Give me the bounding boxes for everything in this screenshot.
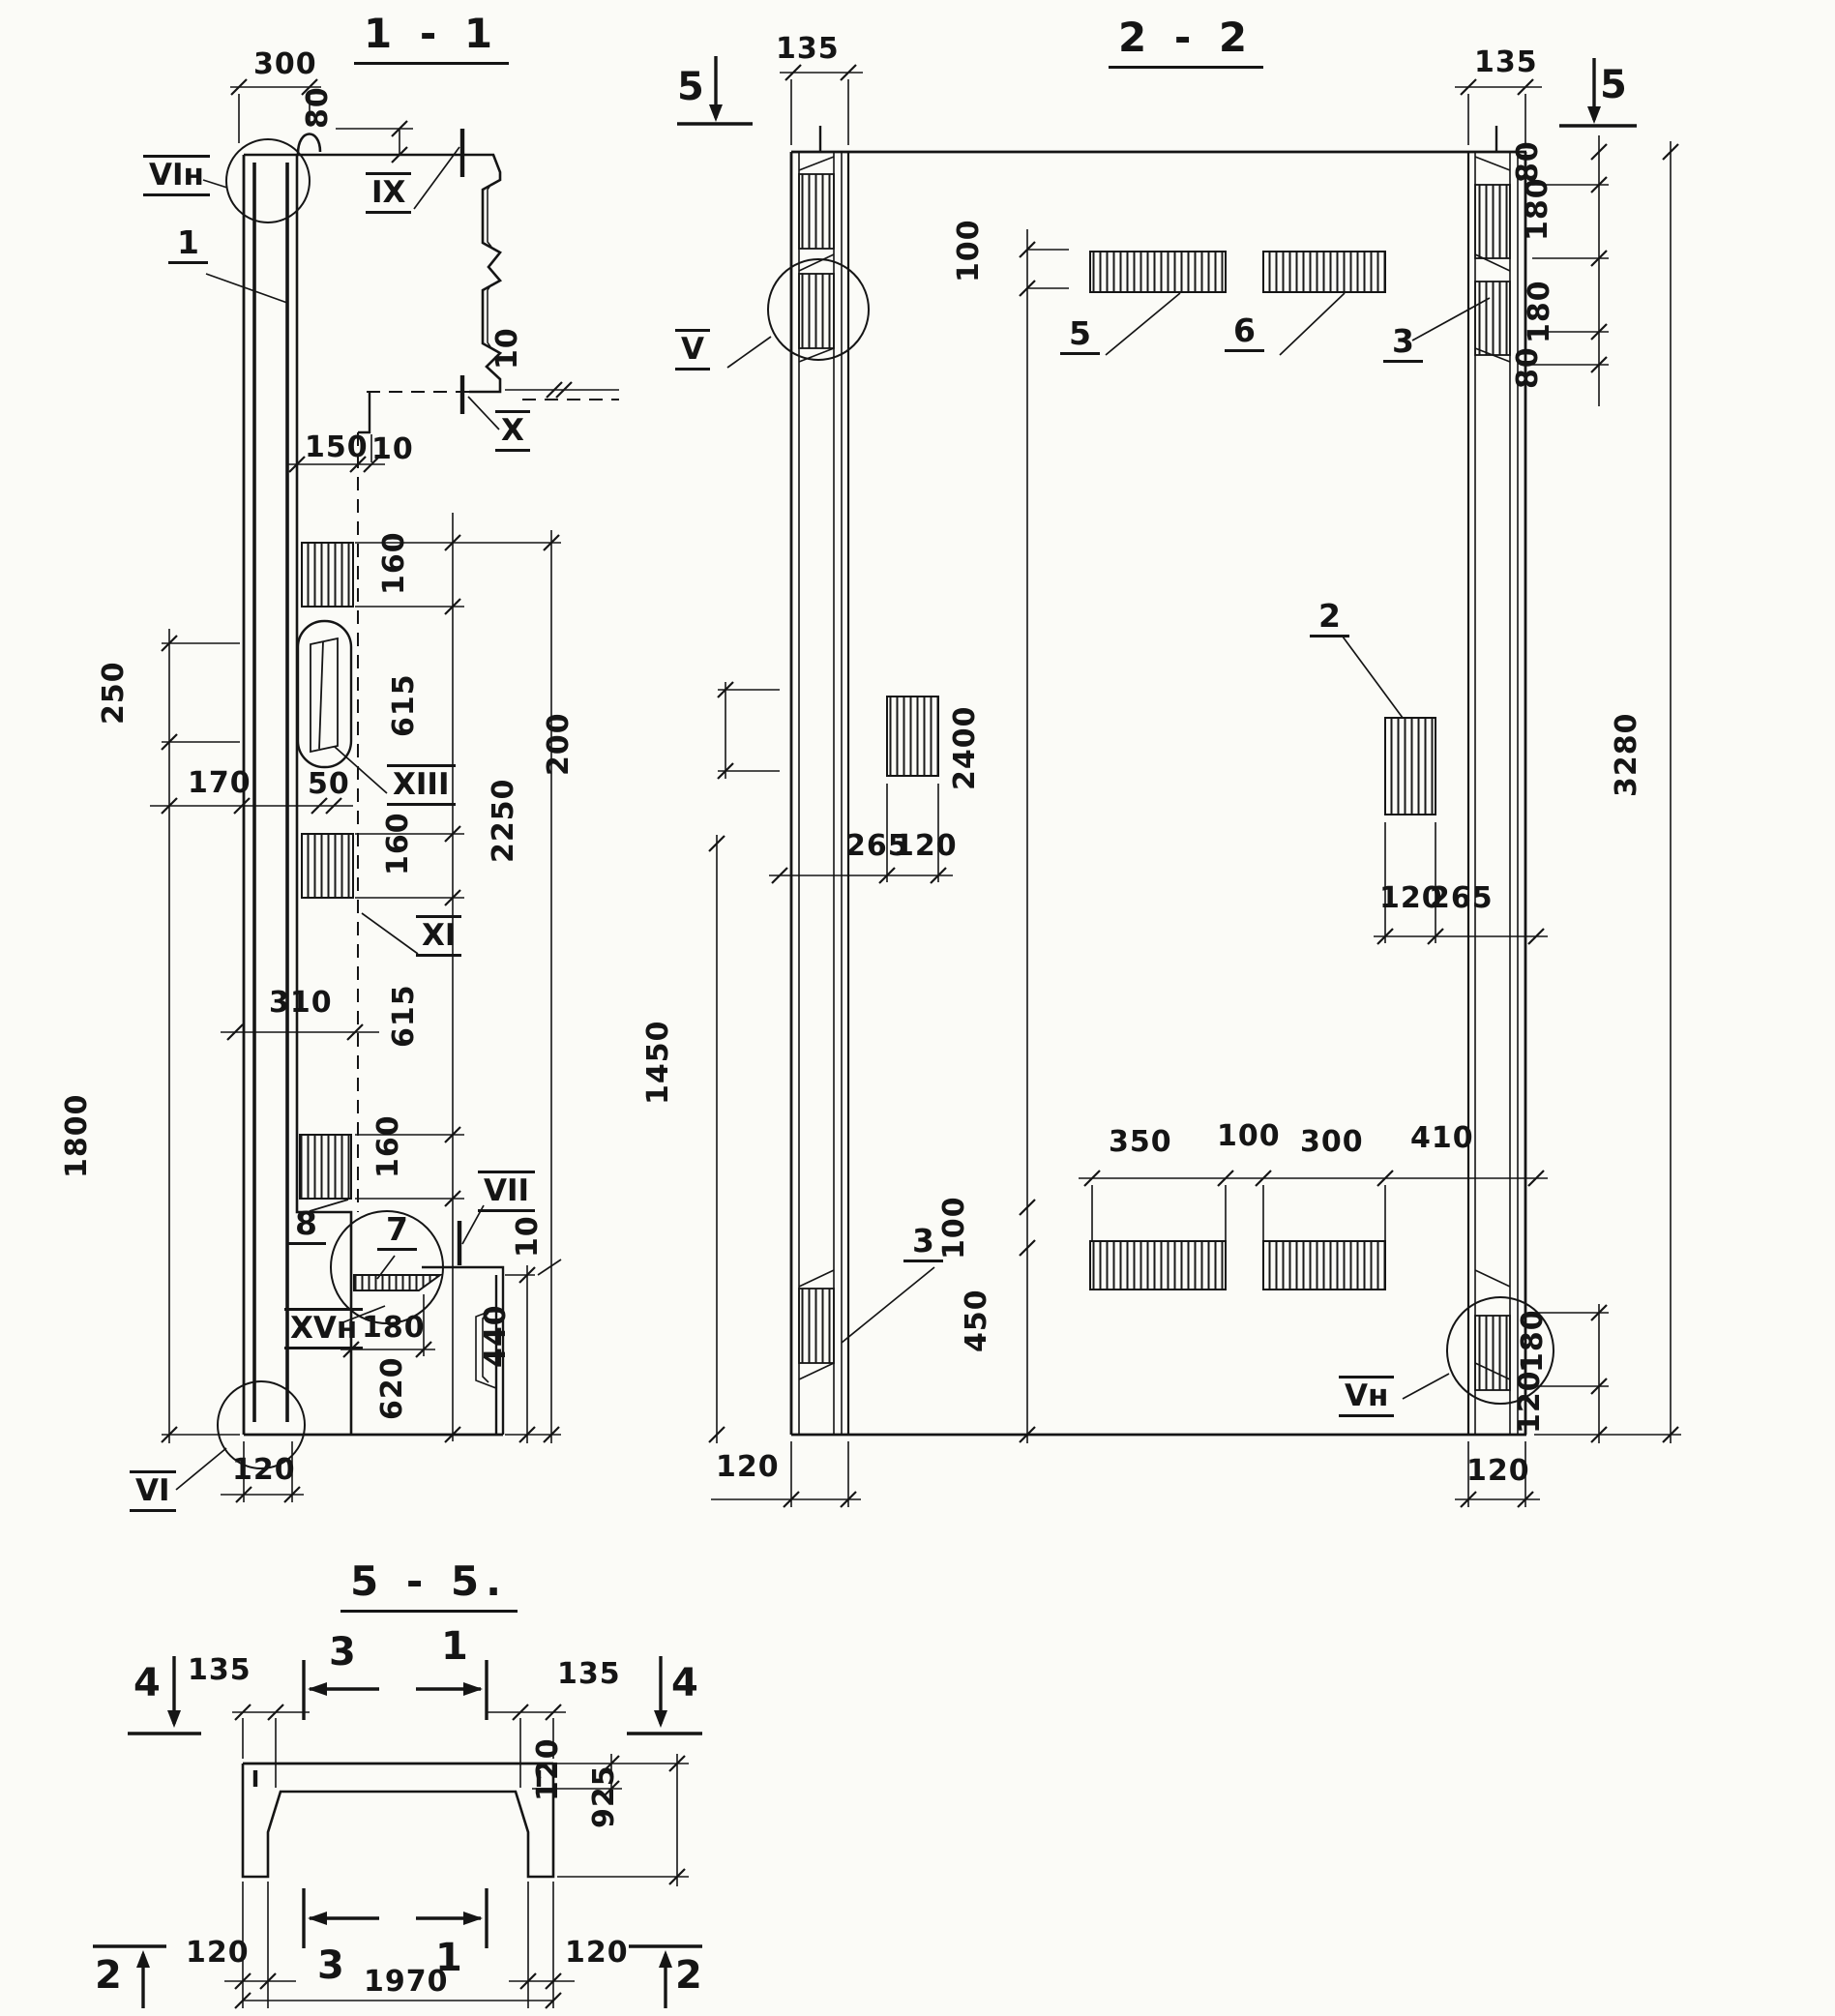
- leader-line: [1403, 1374, 1449, 1399]
- leader-line: [842, 1267, 934, 1343]
- dim-120-rib-bottom: 120: [1515, 1370, 1546, 1434]
- dim-120-flange: 120: [533, 1737, 564, 1801]
- dim-100-top: 100: [954, 219, 985, 282]
- dim-265-right: 265: [1430, 884, 1494, 913]
- arrowhead: [1587, 106, 1601, 124]
- s55-channel-outline: [243, 1764, 553, 1877]
- arrowhead: [659, 1950, 672, 1968]
- dim-160-b: 160: [383, 812, 414, 875]
- cut-mark-2-right: 2: [675, 1956, 702, 1995]
- cut-mark-1-top: 1: [441, 1627, 468, 1666]
- cut-mark-2-left: 2: [95, 1956, 122, 1995]
- leader-line: [362, 913, 418, 954]
- cut-mark-3-top: 3: [329, 1633, 356, 1672]
- dim-150: 150: [305, 433, 369, 462]
- part-label-5: 5: [1060, 317, 1100, 355]
- dim-450: 450: [962, 1289, 992, 1352]
- part-label-3-right: 3: [1383, 325, 1423, 363]
- s22-left-rib-hatch: [799, 157, 834, 1379]
- s22-plate-5: [1090, 252, 1226, 292]
- callout-v-n: Vн: [1339, 1376, 1394, 1417]
- drawing-sheet: 1 - 1 300 80 VIн IX 1 X 150 10 10 160 61…: [0, 0, 1835, 2016]
- s11-recess-slot: [311, 638, 338, 752]
- callout-v: V: [675, 329, 710, 371]
- part-label-8: 8: [286, 1207, 326, 1245]
- dim-3280: 3280: [1612, 713, 1643, 798]
- s11-section-cut-bars: [459, 129, 462, 1265]
- s22-plate-bottom-left: [1090, 1241, 1226, 1290]
- cut-mark-5-right: 5: [1600, 66, 1627, 104]
- callout-vi: VI: [130, 1470, 176, 1512]
- callout-vi-n: VIн: [143, 155, 210, 196]
- dim-200: 200: [544, 712, 575, 776]
- dim-10-bottom: 10: [513, 1215, 544, 1258]
- callout-xv-n: XVн: [284, 1308, 363, 1349]
- arrowhead: [709, 104, 723, 122]
- dim-250: 250: [99, 661, 130, 725]
- dim-310: 310: [269, 989, 333, 1018]
- arrowhead: [308, 1912, 327, 1925]
- s55-rebar-marks: [255, 1770, 539, 1787]
- arrowhead: [136, 1950, 150, 1968]
- dim-2250: 2250: [488, 779, 519, 864]
- dim-440: 440: [481, 1304, 512, 1368]
- dim-620: 620: [377, 1356, 408, 1420]
- part-label-1: 1: [168, 226, 208, 264]
- callout-ix: IX: [366, 172, 411, 214]
- s11-embedded-plate-mid: [302, 834, 353, 898]
- section-5-5-title: 5 - 5.: [340, 1561, 518, 1613]
- dim-180-bottom: 180: [1518, 1309, 1549, 1373]
- part-label-2: 2: [1310, 600, 1349, 637]
- dim-2400: 2400: [950, 706, 981, 791]
- dim-10-step: 10: [371, 435, 414, 464]
- s11-weld-strip: [354, 1275, 440, 1290]
- dim-925: 925: [589, 1764, 620, 1828]
- dim-135-right-55: 135: [557, 1660, 621, 1689]
- arrowhead: [654, 1710, 667, 1728]
- part-label-7: 7: [377, 1213, 417, 1251]
- dim-300: 300: [253, 50, 317, 79]
- arrowhead: [167, 1710, 181, 1728]
- s11-embedded-plate-top: [302, 543, 353, 607]
- dim-615-a: 615: [389, 673, 420, 737]
- dim-120-below-right: 120: [1466, 1457, 1530, 1486]
- leader-line: [206, 274, 287, 303]
- s22-rib-top-ticks: [820, 126, 1496, 152]
- leader-line: [176, 1448, 226, 1490]
- dim-80: 80: [303, 86, 334, 129]
- s11-embedded-plate-bottom: [300, 1135, 351, 1199]
- leader-line: [414, 147, 459, 209]
- s22-right-rib-hatch: [1475, 157, 1510, 1390]
- arrowhead: [463, 1682, 483, 1696]
- arrowhead: [463, 1912, 483, 1925]
- dim-170: 170: [188, 769, 252, 798]
- dim-1800: 1800: [62, 1094, 93, 1179]
- dim-410: 410: [1410, 1124, 1474, 1153]
- dim-1450: 1450: [643, 1021, 674, 1106]
- s11-step-edge: [358, 392, 370, 432]
- section-2-2-geometry: [768, 126, 1554, 1435]
- callout-x: X: [495, 410, 530, 452]
- dim-615-b: 615: [389, 984, 420, 1048]
- leader-line: [1280, 293, 1345, 355]
- dim-135-left: 135: [776, 35, 840, 64]
- dim-10-joint: 10: [492, 327, 523, 370]
- dim-100-bottom: 100: [939, 1196, 970, 1260]
- dim-120-foot: 120: [232, 1456, 296, 1485]
- arrowhead: [308, 1682, 327, 1696]
- section-1-1-geometry: [218, 129, 503, 1468]
- dim-180: 180: [362, 1314, 426, 1343]
- dim-180-top-a: 180: [1523, 177, 1554, 241]
- s22-plate-mid-left: [887, 697, 938, 776]
- cut-mark-5-left: 5: [677, 68, 704, 106]
- dim-350: 350: [1109, 1128, 1172, 1157]
- leader-line: [1343, 637, 1403, 718]
- cut-mark-1-bottom: 1: [435, 1939, 462, 1977]
- dim-300-row: 300: [1300, 1128, 1364, 1157]
- dim-50: 50: [308, 770, 350, 799]
- dim-100-mid: 100: [1217, 1122, 1281, 1151]
- generated-dimension-graphics: [93, 56, 1681, 2008]
- dim-180-top-b: 180: [1524, 280, 1555, 343]
- dim-120-left: 120: [894, 832, 958, 861]
- callout-xi: XI: [416, 915, 461, 957]
- dim-135-left-55: 135: [188, 1656, 252, 1685]
- s11-recess-oval: [298, 621, 351, 767]
- leader-line: [538, 1260, 561, 1275]
- cut-mark-4-left: 4: [133, 1664, 161, 1703]
- dim-120-leg-right: 120: [565, 1939, 629, 1968]
- section-5-5-geometry: [243, 1764, 553, 1877]
- dim-135-right: 135: [1474, 48, 1538, 77]
- part-label-6: 6: [1225, 314, 1264, 352]
- dim-160-c: 160: [373, 1114, 404, 1178]
- dim-160-a: 160: [379, 531, 410, 595]
- cut-mark-3-bottom: 3: [317, 1946, 344, 1985]
- s22-plate-bottom-right: [1263, 1241, 1385, 1290]
- callout-vii: VII: [478, 1171, 535, 1212]
- s22-plate-6: [1263, 252, 1385, 292]
- s22-plate-2: [1385, 718, 1435, 815]
- callout-xiii: XIII: [387, 764, 456, 806]
- section-1-1-title: 1 - 1: [354, 14, 509, 65]
- leader-line: [727, 337, 771, 368]
- leader-line: [1106, 293, 1180, 355]
- dim-120-below-left: 120: [716, 1453, 780, 1482]
- dim-120-leg-left: 120: [186, 1939, 250, 1968]
- dim-80-top-b: 80: [1513, 346, 1544, 389]
- section-2-2-title: 2 - 2: [1109, 17, 1263, 69]
- s11-lifting-loop: [298, 133, 320, 154]
- cut-mark-4-right: 4: [671, 1664, 698, 1703]
